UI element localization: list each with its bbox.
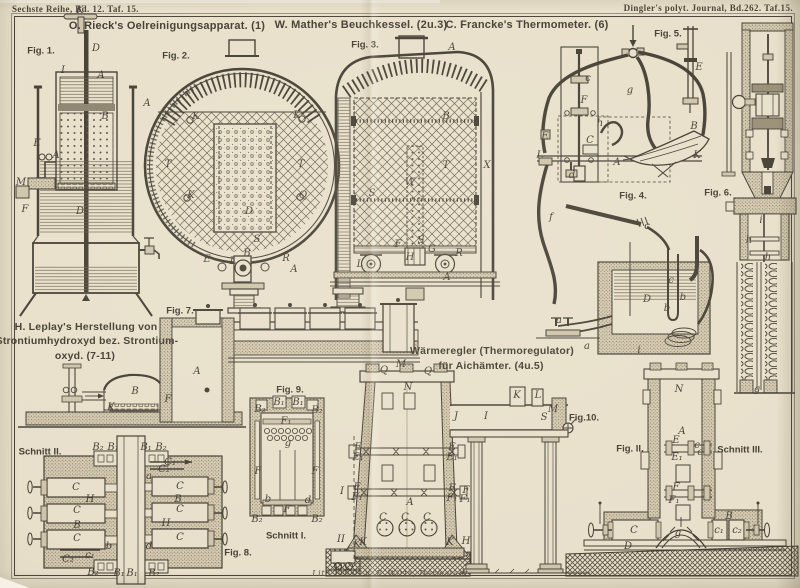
- part-label-fig7-3: F: [165, 394, 172, 405]
- part-label-fig3-1: B: [442, 111, 449, 122]
- part-label-fig10-7: I: [484, 411, 488, 422]
- part-label-fig11-7: F₁: [669, 495, 680, 506]
- part-label-fig3-2: T: [443, 160, 450, 171]
- part-label-fig11-12: c₂: [732, 525, 742, 536]
- part-label-fig10-19: F₁: [460, 494, 471, 505]
- caption-schnitt1: Schnitt I.: [266, 531, 306, 542]
- part-label-fig8-2: B₁: [140, 442, 151, 453]
- part-label-fig10-11: E₁: [352, 452, 363, 463]
- part-label-fig10-15: F₁: [352, 492, 363, 503]
- part-label-fig10-17: F₁: [447, 493, 458, 504]
- part-label-fig4-10: d: [569, 170, 575, 181]
- part-label-fig9-2: B₂: [254, 404, 265, 415]
- part-label-fig9-0: B₁: [273, 397, 284, 408]
- part-label-fig8-10: C: [176, 504, 184, 515]
- part-label-fig10-23: C: [423, 512, 431, 523]
- part-label-fig1-1: D: [92, 43, 100, 54]
- part-label-fig10-6: J: [454, 411, 458, 422]
- part-label-fig2-3: T: [165, 159, 172, 170]
- part-label-fig3-9: H: [406, 252, 415, 263]
- caption-fig11: Fig. II.: [616, 444, 643, 455]
- part-label-fig2-9: E: [203, 254, 210, 265]
- part-label-fig7-1: B: [131, 386, 138, 397]
- part-label-fig8-7: H: [86, 494, 95, 505]
- part-label-fig10-9: M: [548, 404, 558, 415]
- part-label-fig8-17: b: [106, 541, 112, 552]
- part-label-fig3-10: R: [455, 248, 463, 259]
- part-label-fig8-6: C: [176, 481, 184, 492]
- caption-fig9: Fig. 9.: [276, 385, 303, 396]
- part-label-fig4-13: D: [643, 294, 651, 305]
- part-label-fig11-3: E₁: [671, 452, 682, 463]
- part-label-fig10-3: N: [404, 382, 413, 393]
- part-label-fig4-2: g: [627, 85, 633, 96]
- caption-fig7: Fig. 7.: [166, 306, 193, 317]
- part-label-fig11-9: D: [624, 541, 632, 552]
- part-label-fig4-14: c: [668, 275, 674, 286]
- title-waermeregler-line1: Wärmeregler (Thermoregulator): [410, 345, 574, 357]
- part-label-fig9-8: b: [265, 494, 271, 505]
- part-label-fig1-8: F: [22, 204, 29, 215]
- part-label-fig10-25: K: [446, 537, 453, 548]
- part-label-fig3-7: S: [418, 235, 425, 246]
- part-label-fig3-6: F: [395, 239, 402, 250]
- part-label-fig4-11: f: [549, 212, 553, 223]
- part-label-fig2-6: Q: [299, 190, 307, 201]
- part-label-fig10-13: E₁: [446, 452, 457, 463]
- part-label-fig10-1: Q: [380, 365, 388, 376]
- part-label-fig3-4: S: [369, 188, 376, 199]
- fig1-oelreinigungsapparat-drawing: [16, 14, 159, 316]
- part-label-fig9-3: B₂: [311, 405, 322, 416]
- part-label-fig2-2: K: [293, 110, 300, 121]
- fig3-beuchkessel-vertical-section: [330, 36, 500, 312]
- part-label-fig10-22: C: [401, 512, 409, 523]
- part-label-fig4-17: a: [556, 315, 562, 326]
- part-label-fig8-24: B₂: [148, 568, 159, 579]
- part-label-fig8-1: B₁: [107, 442, 118, 453]
- part-label-fig9-11: B₂: [251, 514, 262, 525]
- part-label-fig8-20: C₂: [62, 554, 74, 565]
- caption-schnitt2: Schnitt II.: [19, 447, 62, 458]
- part-label-fig11-8: C: [630, 525, 638, 536]
- part-label-fig8-3: B₂: [155, 442, 166, 453]
- part-label-fig11-0: N: [675, 384, 684, 395]
- title-leplay-line3: oxyd. (7-11): [55, 350, 115, 362]
- part-label-fig11-10: B: [725, 511, 732, 522]
- caption-fig4: Fig. 4.: [619, 191, 646, 202]
- caption-schnitt3: Schnitt III.: [717, 445, 762, 456]
- part-label-fig6-0: i: [759, 215, 762, 226]
- part-label-fig4-8: B: [690, 121, 697, 132]
- part-label-fig8-18: d: [146, 541, 152, 552]
- part-label-fig3-12: A: [443, 272, 450, 283]
- part-label-fig8-5: C: [72, 482, 80, 493]
- part-label-fig8-23: B₁: [126, 568, 137, 579]
- part-label-fig3-11: L: [357, 259, 364, 270]
- caption-fig6: Fig. 6.: [704, 188, 731, 199]
- fig8-schnitt2-retort-plan: [28, 436, 227, 584]
- part-label-fig1-9: D: [76, 206, 84, 217]
- part-label-fig4-7: A: [613, 157, 620, 168]
- title-leplay-line2: Strontiumhydroxyd bez. Strontium-: [0, 335, 178, 347]
- fig6-thermometer-section: [722, 23, 796, 393]
- part-label-fig11-11: c₁: [714, 525, 724, 536]
- part-label-fig11-13: g: [675, 528, 681, 539]
- caption-fig2: Fig. 2.: [162, 51, 189, 62]
- lithographer-credit: Lith. Anst. v. F. Wirtz, Darmstadt.: [312, 569, 472, 578]
- part-label-fig10-29: K: [353, 539, 360, 550]
- part-label-fig10-4: K: [513, 390, 520, 401]
- part-label-fig11-2: E: [672, 435, 679, 446]
- part-label-fig4-4: C: [586, 135, 594, 146]
- part-label-fig2-13: A: [290, 264, 297, 275]
- part-label-fig2-5: K: [187, 190, 194, 201]
- part-label-fig7-2: K: [107, 402, 114, 413]
- part-label-fig8-13: C: [73, 533, 81, 544]
- part-label-fig6-3: g: [754, 384, 760, 395]
- part-label-fig8-22: B₁: [113, 568, 124, 579]
- title-mather: W. Mather's Beuchkessel. (2u.3): [275, 19, 448, 31]
- part-label-fig2-10: B: [243, 248, 250, 259]
- part-label-fig9-5: g: [285, 438, 291, 449]
- part-label-fig9-10: F: [284, 504, 291, 515]
- part-label-fig8-16: C₂: [158, 464, 170, 475]
- fig2-beuchkessel-cross-section: [145, 40, 339, 313]
- part-label-fig4-0: c: [585, 73, 591, 84]
- part-label-fig10-5: L: [535, 390, 542, 401]
- part-label-fig4-9: K: [693, 150, 700, 161]
- title-leplay-line1: H. Leplay's Herstellung von: [15, 321, 158, 333]
- part-label-fig9-1: B₁: [292, 397, 303, 408]
- title-waermeregler-line2: für Aichämter. (4u.5): [438, 360, 543, 372]
- part-label-fig8-19: c₁: [85, 550, 95, 561]
- part-label-fig4-6: L: [537, 150, 544, 161]
- part-label-fig11-6: F: [673, 482, 680, 493]
- part-label-fig1-0: K: [76, 5, 83, 16]
- part-label-fig1-4: B: [101, 111, 108, 122]
- part-label-fig2-7: D: [245, 206, 253, 217]
- part-label-fig3-3: X: [483, 160, 490, 171]
- part-label-fig6-1: h: [746, 235, 752, 246]
- part-label-fig2-4: T: [298, 159, 305, 170]
- part-label-fig8-4: a: [146, 471, 152, 482]
- part-label-fig8-11: B: [73, 520, 80, 531]
- part-label-fig1-3: A: [97, 70, 104, 81]
- part-label-fig4-1: F: [581, 95, 588, 106]
- part-label-fig10-28: II: [337, 534, 345, 545]
- part-label-fig10-26: H: [462, 536, 471, 547]
- part-label-fig8-14: C: [176, 532, 184, 543]
- part-label-fig4-16: b: [680, 292, 686, 303]
- caption-fig5: Fig. 5.: [654, 29, 681, 40]
- fig7-strontium-furnace: [18, 298, 420, 427]
- part-label-fig3-8: G: [428, 244, 436, 255]
- part-label-fig4-5: E: [541, 131, 548, 142]
- part-label-fig9-7: F: [312, 466, 319, 477]
- part-label-fig8-9: C: [73, 505, 81, 516]
- part-label-fig2-12: R: [282, 253, 290, 264]
- caption-fig1: Fig. 1.: [27, 46, 54, 57]
- part-label-fig3-5: W: [405, 177, 415, 188]
- part-label-fig9-4: F₁: [281, 416, 292, 427]
- part-label-fig9-6: F: [255, 466, 262, 477]
- part-label-fig6-2: h: [765, 252, 771, 263]
- part-label-fig2-0: A: [143, 98, 150, 109]
- part-label-fig5-0: E: [695, 62, 702, 73]
- caption-fig8: Fig. 8.: [224, 548, 251, 559]
- part-label-fig10-27: I: [340, 486, 344, 497]
- part-label-fig1-7: M: [16, 177, 26, 188]
- part-label-fig1-6: A: [52, 150, 59, 161]
- scanned-plate-page: Sechste Reihe, Bd. 12. Taf. 15. Dingler'…: [0, 0, 800, 588]
- part-label-fig8-12: H: [162, 518, 171, 529]
- part-label-fig9-9: d: [305, 495, 311, 506]
- part-label-fig10-8: S: [541, 412, 548, 423]
- part-label-fig9-12: B₂: [311, 514, 322, 525]
- caption-fig3: Fig. 3.: [351, 40, 378, 51]
- part-label-fig4-18: a: [584, 341, 590, 352]
- part-label-fig1-2: I: [61, 65, 65, 76]
- part-label-fig4-3: h: [597, 118, 603, 129]
- part-label-fig4-12: c: [644, 221, 650, 232]
- part-label-fig2-11: L: [230, 256, 237, 267]
- part-label-fig2-8: S: [254, 234, 261, 245]
- part-label-fig4-15: b: [664, 303, 670, 314]
- part-label-fig10-0: M: [396, 359, 406, 370]
- part-label-fig2-1: K: [192, 111, 199, 122]
- title-francke: C. Francke's Thermometer. (6): [445, 19, 608, 31]
- part-label-fig4-19: i: [637, 345, 640, 356]
- part-label-fig11-5: c: [697, 447, 703, 458]
- fig4-waermeregler-apparatus: [536, 25, 713, 354]
- part-label-fig8-0: B₂: [92, 442, 103, 453]
- part-label-fig10-20: A: [406, 497, 413, 508]
- part-label-fig8-21: B₂: [87, 567, 98, 578]
- part-label-fig1-5: E: [33, 138, 40, 149]
- title-rieck: O. Rieck's Oelreinigungsapparat. (1): [69, 20, 265, 32]
- part-label-fig10-21: C: [379, 512, 387, 523]
- caption-fig10: Fig.10.: [569, 413, 599, 424]
- part-label-fig10-2: Q: [424, 366, 432, 377]
- part-label-fig3-0: A: [448, 42, 455, 53]
- part-label-fig7-0: A: [193, 366, 200, 377]
